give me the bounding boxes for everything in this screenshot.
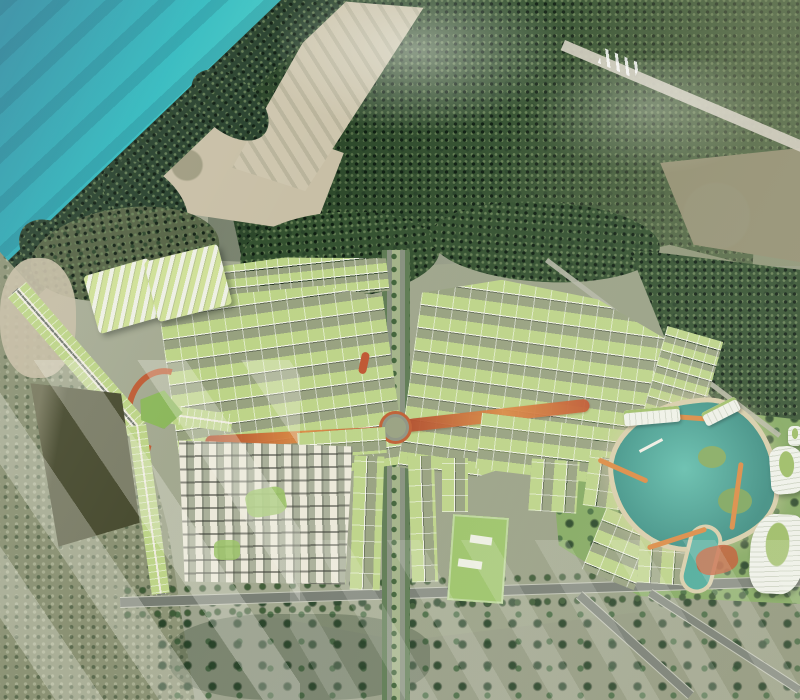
shophouse-row-east-short <box>442 458 468 512</box>
green-park-block <box>447 514 509 604</box>
shophouse-row-boulevard-west <box>350 456 385 591</box>
resort-tower-1 <box>768 445 800 495</box>
central-boulevard <box>382 250 410 700</box>
resort-tower-small <box>788 426 800 446</box>
villa-pocket-park-2 <box>214 540 240 560</box>
lagoon-island-1 <box>698 446 726 468</box>
aerial-masterplan-render <box>0 0 800 700</box>
east-cluster-a <box>528 458 580 513</box>
shophouse-row-boulevard-east <box>408 456 438 583</box>
